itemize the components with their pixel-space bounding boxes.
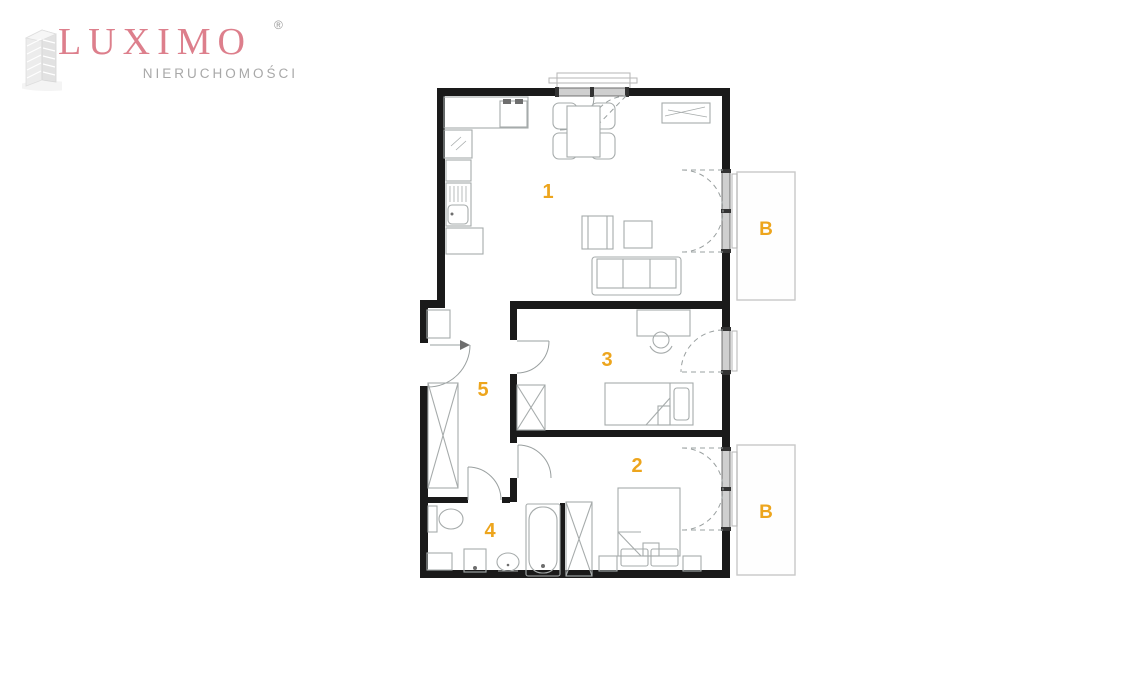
bedroom3-wardrobe <box>517 385 545 430</box>
washing-machine <box>464 549 486 572</box>
sofa <box>592 257 681 295</box>
double-bed <box>618 488 680 566</box>
brand-name: LUXIMO <box>58 20 252 64</box>
bathroom-door <box>468 467 501 500</box>
living-room-balcony-door <box>682 169 737 253</box>
bath-cabinet <box>427 553 452 570</box>
dining-table <box>553 103 615 159</box>
registered-mark: ® <box>274 18 283 32</box>
building-icon <box>22 20 62 96</box>
bedroom2-door <box>518 445 551 478</box>
walls <box>420 88 730 578</box>
sideboard <box>662 103 710 123</box>
floor-plan: 12345BB <box>410 55 810 590</box>
bedroom2-wardrobe <box>566 502 592 576</box>
room-5-label: 5 <box>477 379 488 401</box>
toilet <box>428 506 463 532</box>
room-2-label: 2 <box>631 455 642 477</box>
top-door-frame <box>549 73 637 88</box>
bedroom3-door <box>517 341 549 373</box>
nightstand-left <box>599 556 617 571</box>
balcony-bottom-label: B <box>759 502 773 523</box>
page: LUXIMO ® NIERUCHOMOŚCI <box>0 0 1140 698</box>
bathtub <box>526 504 560 576</box>
brand-subtitle: NIERUCHOMOŚCI <box>122 66 298 81</box>
room-4-label: 4 <box>484 520 496 542</box>
room-3-label: 3 <box>601 349 612 371</box>
kitchen-counter <box>444 97 528 254</box>
bedroom2-balcony-door <box>682 447 737 531</box>
luximo-logo: LUXIMO ® NIERUCHOMOŚCI <box>22 18 322 98</box>
balcony-top-label: B <box>759 219 773 240</box>
armchair <box>582 216 613 249</box>
hall-wardrobe <box>428 383 458 488</box>
nightstand-right <box>683 556 701 571</box>
bedroom3-window-door <box>681 327 737 374</box>
entrance-door <box>428 340 470 387</box>
coffee-table <box>624 221 652 248</box>
bathroom-sink <box>497 553 519 571</box>
single-bed <box>605 383 693 425</box>
desk-chair <box>650 332 672 353</box>
room-1-label: 1 <box>542 181 553 203</box>
hall-niche <box>427 310 450 338</box>
